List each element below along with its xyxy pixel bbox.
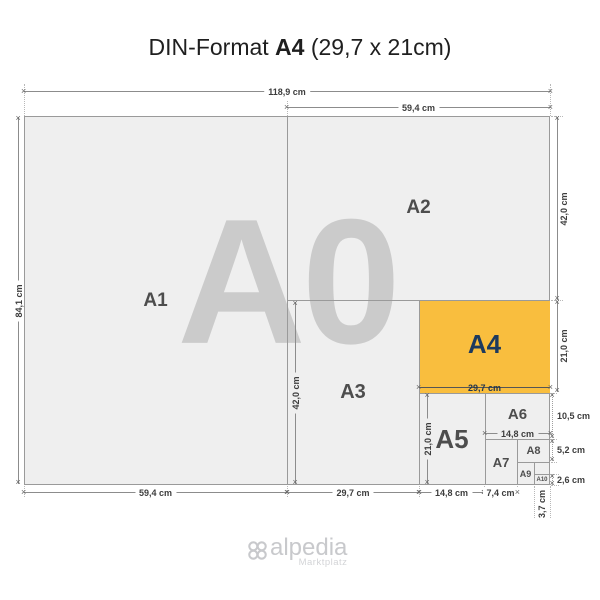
alpedia-logo-tagline: Marktplatz [299,558,348,568]
dim-a8-height [552,440,553,461]
dim-a10-height [552,475,553,485]
dim-a1-width-label: 59,4 cm [135,488,176,498]
sheet-a6-label: A6 [508,406,527,423]
sheet-a2: A2 [287,116,550,300]
dim-inside-a3-height-label: 42,0 cm [291,372,301,413]
sheet-a7: A7 [485,439,517,485]
dim-total-width-label: 118,9 cm [264,87,310,97]
sheet-a5-label: A5 [435,424,468,455]
sheet-a2-label: A2 [406,197,430,219]
dim-inside-a4-width-label: 29,7 cm [464,383,505,393]
title-size: (29,7 x 21cm) [304,34,451,60]
alpedia-logo-text: alpedia Marktplatz [270,537,347,568]
dim-a6-height-label: 10,5 cm [557,411,590,421]
title-format: A4 [275,34,304,60]
extension-line [550,486,551,518]
dim-a7-width-label: 7,4 cm [482,488,518,498]
sheet-a4-label: A4 [468,329,501,360]
dim-inside-a5-height-label: 21,0 cm [423,418,433,459]
alpedia-logo-name: alpedia [270,537,347,559]
sheet-a7-label: A7 [493,455,510,470]
dim-inside-a4-width: 29,7 cm [419,387,550,388]
sheet-a9-label: A9 [520,469,532,479]
dim-total-height: 84,1 cm [18,117,19,484]
dim-a7-width: 7,4 cm [484,492,517,493]
sheet-a10: A10 [534,474,550,485]
dim-a2-height [557,117,558,300]
dim-a3-width-label: 29,7 cm [332,488,373,498]
sheet-a3-label: A3 [340,381,366,404]
extension-line [534,486,535,518]
dim-a1-width: 59,4 cm [24,492,287,493]
dim-total-width: 118,9 cm [24,91,550,92]
sheet-a4: A4 [419,300,550,389]
dim-a10-height-label: 2,6 cm [557,475,585,485]
sheet-a10-label: A10 [536,477,547,483]
sheet-a8-label: A8 [526,445,540,457]
dim-a8-height-label: 5,2 cm [557,445,585,455]
dim-a2-width-label: 59,4 cm [398,103,439,113]
title-prefix: DIN-Format [149,34,276,60]
page-title: DIN-Format A4 (29,7 x 21cm) [0,34,600,61]
din-format-diagram: DIN-Format A4 (29,7 x 21cm) A0 A1 A2 A3 … [0,0,600,600]
dim-a2-height-label: 42,0 cm [559,192,569,225]
dim-a5-width-label: 14,8 cm [431,488,472,498]
dim-a2-width: 59,4 cm [287,107,550,108]
sheet-a3: A3 [287,300,419,485]
dim-total-height-label: 84,1 cm [14,280,24,321]
dim-inside-a6-width: 14,8 cm [485,433,550,434]
dim-inside-a5-height: 21,0 cm [427,394,428,484]
dim-a3-width: 29,7 cm [287,492,419,493]
dim-a4-height-label: 21,0 cm [559,329,569,362]
dim-a4-height [557,301,558,392]
sheet-a1-label: A1 [143,290,167,312]
dim-a5-width: 14,8 cm [419,492,484,493]
alpedia-logo-icon [247,540,268,561]
alpedia-logo: alpedia Marktplatz [247,537,347,568]
dim-a10-width-label: 3,7 cm [537,490,547,518]
sheet-a9: A9 [517,462,534,485]
dim-inside-a6-width-label: 14,8 cm [497,429,538,439]
sheet-a8: A8 [517,439,550,462]
dim-inside-a3-height: 42,0 cm [295,302,296,484]
sheet-a1: A1 [24,116,287,485]
